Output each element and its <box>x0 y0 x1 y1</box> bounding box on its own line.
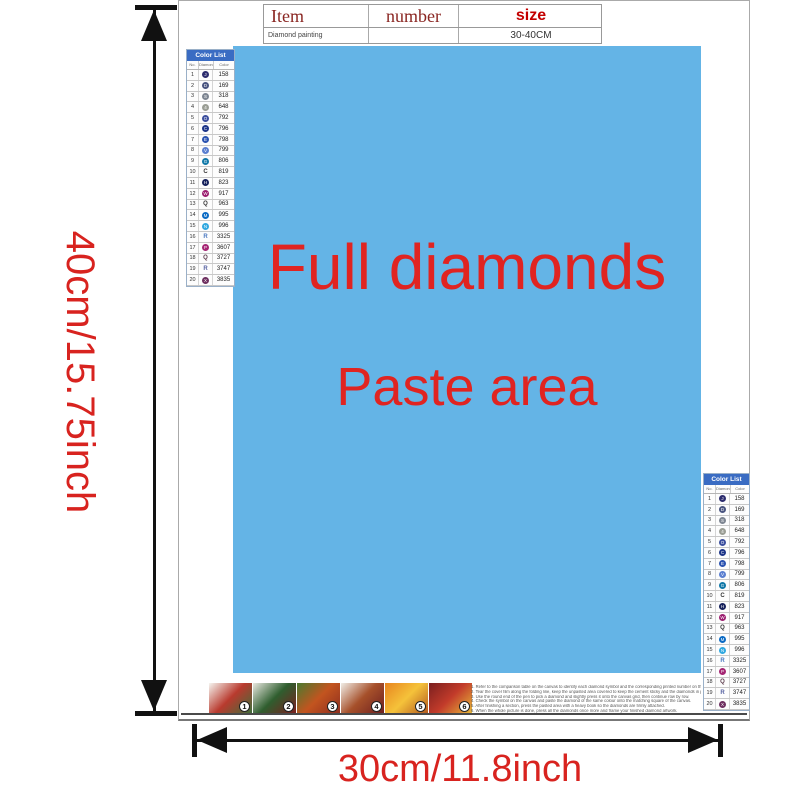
diamond-symbol: Q <box>198 200 213 210</box>
number-value-cell <box>368 28 458 43</box>
color-row-number: 1 <box>187 72 198 78</box>
diamond-symbol: R <box>198 264 213 274</box>
dmc-color-code: 798 <box>213 137 234 143</box>
color-list-row: 4 4 648 <box>187 102 234 113</box>
color-list-right: Color List No. Diamond Color 1 J 158 2 <box>703 473 750 711</box>
size-header-cell: size <box>458 5 603 27</box>
product-image: Item number size Diamond painting 30-40C… <box>0 0 800 800</box>
color-list-row: 9 G 806 <box>704 580 749 591</box>
diamond-symbol: W <box>198 189 213 199</box>
item-table-data-row: Diamond painting 30-40CM <box>264 28 601 43</box>
horizontal-dimension-line <box>197 739 718 742</box>
dmc-color-code: 169 <box>730 507 749 513</box>
dmc-color-code: 169 <box>213 83 234 89</box>
color-row-number: 5 <box>187 115 198 121</box>
dmc-color-code: 3325 <box>730 658 749 664</box>
diamond-symbol: E <box>198 135 213 145</box>
diamond-symbol: N <box>715 645 730 655</box>
dmc-color-code: 799 <box>213 147 234 153</box>
color-list-rows: 1 J 158 2 D 169 3 S 318 <box>187 70 234 286</box>
color-list-row: 13 Q 963 <box>187 200 234 211</box>
instruction-text-block: 1. Refer to the comparison table on the … <box>471 685 701 714</box>
color-row-number: 7 <box>187 137 198 143</box>
color-list-row: 13 Q 963 <box>704 624 749 635</box>
dmc-color-code: 823 <box>730 604 749 610</box>
diamond-symbol: O <box>715 537 730 547</box>
color-row-number: 15 <box>704 647 715 653</box>
vertical-dimension-label: 40cm/15.75inch <box>58 182 102 562</box>
dmc-color-code: 963 <box>213 201 234 207</box>
color-row-number: 9 <box>704 582 715 588</box>
diamond-symbol: P <box>198 243 213 253</box>
step-thumbnails: 1 2 3 4 5 6 <box>209 683 473 713</box>
diamond-symbol: N <box>198 221 213 231</box>
diamond-symbol: G <box>715 580 730 590</box>
color-row-number: 11 <box>187 180 198 186</box>
color-row-number: 3 <box>187 93 198 99</box>
color-list-row: 14 M 995 <box>704 634 749 645</box>
color-list-row: 3 S 318 <box>704 516 749 527</box>
color-list-row: 20 X 3835 <box>704 699 749 710</box>
diamond-symbol: M <box>715 634 730 644</box>
diamond-symbol: R <box>198 232 213 242</box>
diamond-symbol: G <box>198 156 213 166</box>
color-row-number: 17 <box>187 245 198 251</box>
diamond-symbol: Q <box>715 624 730 634</box>
dmc-color-code: 3835 <box>730 701 749 707</box>
color-list-row: 15 N 996 <box>704 645 749 656</box>
vertical-dimension-line <box>153 10 156 711</box>
color-row-number: 9 <box>187 158 198 164</box>
horizontal-arrow-right-cap <box>718 724 723 757</box>
col-no: No. <box>704 485 715 493</box>
dmc-color-code: 3747 <box>213 266 234 272</box>
color-list-column-headers: No. Diamond Color <box>187 61 234 70</box>
dmc-color-code: 995 <box>730 636 749 642</box>
dmc-color-code: 799 <box>730 571 749 577</box>
color-list-row: 10 C 819 <box>704 591 749 602</box>
color-row-number: 20 <box>704 701 715 707</box>
color-row-number: 12 <box>187 191 198 197</box>
diamond-symbol: R <box>715 688 730 698</box>
color-list-row: 5 O 792 <box>187 113 234 124</box>
diamond-symbol: D <box>198 81 213 91</box>
color-row-number: 8 <box>187 147 198 153</box>
color-row-number: 5 <box>704 539 715 545</box>
color-list-row: 2 D 169 <box>704 505 749 516</box>
color-row-number: 20 <box>187 277 198 283</box>
dmc-color-code: 3727 <box>730 679 749 685</box>
diamond-symbol: D <box>715 505 730 515</box>
color-list-row: 8 V 799 <box>704 570 749 581</box>
dmc-color-code: 648 <box>213 104 234 110</box>
diamond-symbol: W <box>715 613 730 623</box>
step-number-badge: 6 <box>459 701 470 712</box>
color-row-number: 15 <box>187 223 198 229</box>
color-row-number: 4 <box>187 104 198 110</box>
diamond-symbol: C <box>198 124 213 134</box>
item-table-header-row: Item number size <box>264 5 601 28</box>
dmc-color-code: 996 <box>213 223 234 229</box>
dmc-color-code: 792 <box>730 539 749 545</box>
color-list-row: 1 J 158 <box>704 494 749 505</box>
step-number-badge: 2 <box>283 701 294 712</box>
step-thumbnail: 1 <box>209 683 252 713</box>
item-info-table: Item number size Diamond painting 30-40C… <box>263 4 602 44</box>
diamond-symbol: X <box>715 699 730 709</box>
color-list-row: 12 W 917 <box>704 613 749 624</box>
diamond-symbol: H <box>715 602 730 612</box>
vertical-arrow-bottom-cap <box>135 711 177 716</box>
diamond-symbol: Q <box>198 254 213 264</box>
color-row-number: 18 <box>704 679 715 685</box>
diamond-symbol: S <box>715 516 730 526</box>
color-list-row: 1 J 158 <box>187 70 234 81</box>
dmc-color-code: 823 <box>213 180 234 186</box>
item-value-cell: Diamond painting <box>264 28 368 43</box>
color-row-number: 14 <box>187 212 198 218</box>
dmc-color-code: 995 <box>213 212 234 218</box>
dmc-color-code: 819 <box>730 593 749 599</box>
color-list-row: 7 E 798 <box>187 135 234 146</box>
diamond-symbol: J <box>715 494 730 504</box>
dmc-color-code: 798 <box>730 561 749 567</box>
diamond-symbol: C <box>715 548 730 558</box>
color-list-row: 17 P 3607 <box>704 667 749 678</box>
diamond-symbol: C <box>198 167 213 177</box>
color-list-row: 9 G 806 <box>187 156 234 167</box>
color-list-row: 16 R 3325 <box>187 232 234 243</box>
color-list-row: 11 H 823 <box>704 602 749 613</box>
color-row-number: 6 <box>187 126 198 132</box>
diamond-symbol: O <box>198 113 213 123</box>
step-thumbnail: 5 <box>385 683 428 713</box>
dmc-color-code: 318 <box>730 517 749 523</box>
color-list-title: Color List <box>187 50 234 61</box>
color-row-number: 10 <box>704 593 715 599</box>
diamond-symbol: X <box>198 275 213 285</box>
col-no: No. <box>187 61 198 69</box>
diamond-symbol: E <box>715 559 730 569</box>
dmc-color-code: 648 <box>730 528 749 534</box>
dmc-color-code: 3835 <box>213 277 234 283</box>
color-row-number: 2 <box>704 507 715 513</box>
step-number-badge: 3 <box>327 701 338 712</box>
diamond-symbol: V <box>198 146 213 156</box>
color-row-number: 13 <box>704 625 715 631</box>
dmc-color-code: 796 <box>730 550 749 556</box>
diamond-symbol: R <box>715 656 730 666</box>
dmc-color-code: 917 <box>213 191 234 197</box>
color-row-number: 18 <box>187 255 198 261</box>
dmc-color-code: 3607 <box>213 245 234 251</box>
color-list-title: Color List <box>704 474 749 485</box>
color-list-row: 6 C 796 <box>704 548 749 559</box>
dmc-color-code: 796 <box>213 126 234 132</box>
dmc-color-code: 917 <box>730 615 749 621</box>
dmc-color-code: 3607 <box>730 669 749 675</box>
color-row-number: 3 <box>704 517 715 523</box>
dmc-color-code: 3727 <box>213 255 234 261</box>
paste-area: Full diamonds Paste area <box>233 46 701 673</box>
step-thumbnail: 2 <box>253 683 296 713</box>
step-number-badge: 5 <box>415 701 426 712</box>
color-row-number: 7 <box>704 561 715 567</box>
color-list-row: 8 V 799 <box>187 146 234 157</box>
color-row-number: 13 <box>187 201 198 207</box>
color-list-row: 11 H 823 <box>187 178 234 189</box>
diamond-symbol: M <box>198 210 213 220</box>
diamond-symbol: V <box>715 570 730 580</box>
dmc-color-code: 792 <box>213 115 234 121</box>
diamond-symbol: H <box>198 178 213 188</box>
color-list-row: 2 D 169 <box>187 81 234 92</box>
color-list-row: 10 C 819 <box>187 167 234 178</box>
dmc-color-code: 3747 <box>730 690 749 696</box>
step-number-badge: 4 <box>371 701 382 712</box>
color-list-row: 7 E 798 <box>704 559 749 570</box>
color-list-row: 18 Q 3727 <box>187 254 234 265</box>
color-row-number: 4 <box>704 528 715 534</box>
dmc-color-code: 158 <box>730 496 749 502</box>
color-row-number: 6 <box>704 550 715 556</box>
canvas-sheet: Item number size Diamond painting 30-40C… <box>178 0 750 721</box>
diamond-symbol: Q <box>715 678 730 688</box>
dmc-color-code: 996 <box>730 647 749 653</box>
col-diamond: Diamond <box>715 485 730 493</box>
arrow-down-icon <box>141 680 167 711</box>
color-list-row: 5 O 792 <box>704 537 749 548</box>
col-diamond: Diamond <box>198 61 213 69</box>
diamond-symbol: P <box>715 667 730 677</box>
col-color: Color <box>213 61 234 69</box>
color-row-number: 16 <box>187 234 198 240</box>
color-row-number: 17 <box>704 669 715 675</box>
color-row-number: 19 <box>187 266 198 272</box>
color-list-row: 6 C 796 <box>187 124 234 135</box>
color-row-number: 8 <box>704 571 715 577</box>
color-list-row: 17 P 3607 <box>187 243 234 254</box>
diamond-symbol: J <box>198 70 213 80</box>
step-thumbnail: 4 <box>341 683 384 713</box>
arrow-right-icon <box>688 727 718 753</box>
item-header-cell: Item <box>264 5 368 27</box>
dmc-color-code: 806 <box>730 582 749 588</box>
paste-area-title: Full diamonds <box>233 235 701 299</box>
size-value-cell: 30-40CM <box>458 28 603 43</box>
diamond-symbol: 4 <box>198 102 213 112</box>
step-number-badge: 1 <box>239 701 250 712</box>
color-row-number: 1 <box>704 496 715 502</box>
col-color: Color <box>730 485 749 493</box>
step-thumbnail: 3 <box>297 683 340 713</box>
dmc-color-code: 819 <box>213 169 234 175</box>
color-row-number: 2 <box>187 83 198 89</box>
color-list-row: 14 M 995 <box>187 210 234 221</box>
color-list-row: 20 X 3835 <box>187 275 234 286</box>
color-list-row: 4 4 648 <box>704 526 749 537</box>
diamond-symbol: S <box>198 92 213 102</box>
color-list-row: 16 R 3325 <box>704 656 749 667</box>
horizontal-dimension-label: 30cm/11.8inch <box>240 748 680 790</box>
color-list-row: 3 S 318 <box>187 92 234 103</box>
diamond-symbol: C <box>715 591 730 601</box>
color-row-number: 11 <box>704 604 715 610</box>
number-header-cell: number <box>368 5 458 27</box>
color-row-number: 16 <box>704 658 715 664</box>
color-list-row: 19 R 3747 <box>704 688 749 699</box>
color-row-number: 10 <box>187 169 198 175</box>
color-list-column-headers: No. Diamond Color <box>704 485 749 494</box>
color-list-rows: 1 J 158 2 D 169 3 S 318 <box>704 494 749 710</box>
step-thumbnail: 6 <box>429 683 472 713</box>
color-list-row: 18 Q 3727 <box>704 678 749 689</box>
color-row-number: 12 <box>704 615 715 621</box>
diamond-symbol: 4 <box>715 526 730 536</box>
color-row-number: 19 <box>704 690 715 696</box>
color-list-row: 19 R 3747 <box>187 264 234 275</box>
color-list-row: 15 N 996 <box>187 221 234 232</box>
dmc-color-code: 3325 <box>213 234 234 240</box>
dmc-color-code: 806 <box>213 158 234 164</box>
bottom-divider-line <box>181 713 747 715</box>
paste-area-subtitle: Paste area <box>233 360 701 414</box>
color-list-left: Color List No. Diamond Color 1 J 158 2 <box>186 49 235 287</box>
dmc-color-code: 318 <box>213 93 234 99</box>
color-row-number: 14 <box>704 636 715 642</box>
dmc-color-code: 158 <box>213 72 234 78</box>
color-list-row: 12 W 917 <box>187 189 234 200</box>
dmc-color-code: 963 <box>730 625 749 631</box>
